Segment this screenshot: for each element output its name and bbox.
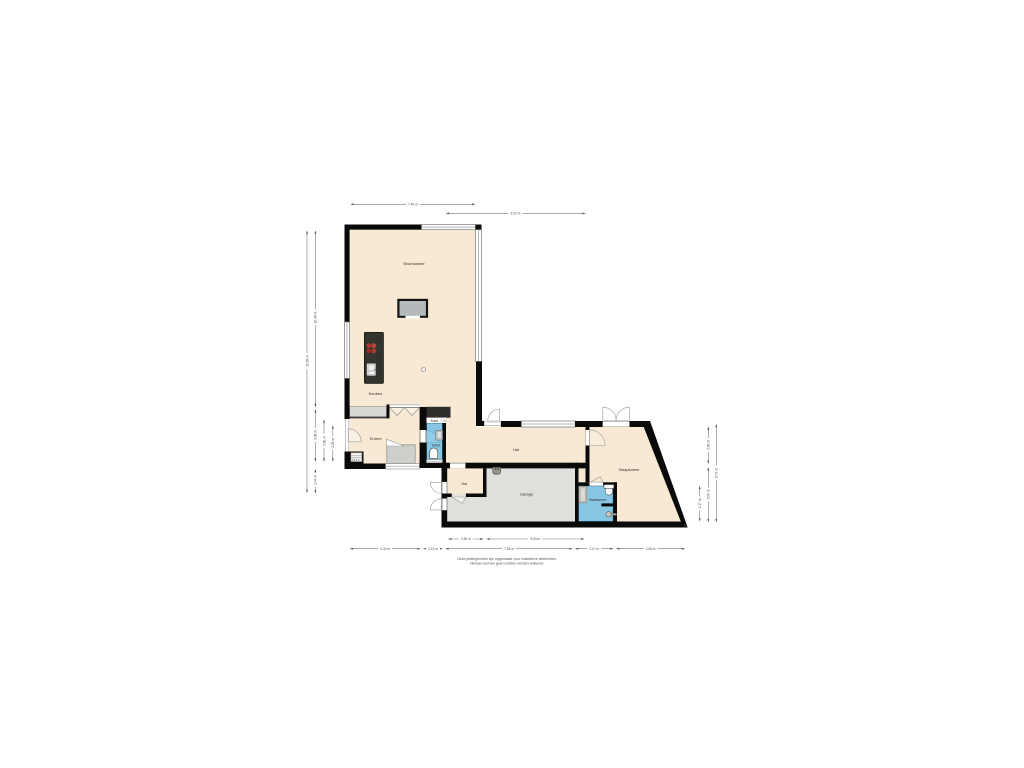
svg-text:5.84 m: 5.84 m bbox=[530, 537, 540, 541]
svg-text:7.40 m: 7.40 m bbox=[408, 203, 418, 207]
svg-text:2.80 m: 2.80 m bbox=[322, 436, 326, 446]
svg-text:Badkamer: Badkamer bbox=[589, 498, 607, 502]
svg-text:4.08 m: 4.08 m bbox=[646, 547, 656, 551]
svg-text:3.00 m: 3.00 m bbox=[707, 489, 711, 499]
svg-text:2.17 m: 2.17 m bbox=[698, 498, 702, 508]
svg-text:Hal: Hal bbox=[461, 482, 467, 486]
svg-text:2.17 m: 2.17 m bbox=[589, 547, 599, 551]
svg-text:8.22 m: 8.22 m bbox=[511, 212, 521, 216]
svg-text:2.06 m: 2.06 m bbox=[707, 440, 711, 450]
svg-text:Slaapkamer: Slaapkamer bbox=[618, 467, 640, 472]
svg-text:15.68 m: 15.68 m bbox=[305, 355, 309, 367]
svg-text:10.48 m: 10.48 m bbox=[314, 311, 318, 323]
svg-text:1.44 m: 1.44 m bbox=[314, 475, 318, 485]
svg-text:Hal: Hal bbox=[513, 447, 519, 452]
svg-text:2.30 m: 2.30 m bbox=[461, 537, 471, 541]
svg-text:3.06 m: 3.06 m bbox=[314, 430, 318, 440]
svg-text:Toilet: Toilet bbox=[431, 444, 441, 448]
svg-text:Entree: Entree bbox=[370, 436, 383, 441]
svg-text:Keuken: Keuken bbox=[369, 391, 383, 396]
svg-text:6.79 m: 6.79 m bbox=[715, 468, 719, 478]
svg-text:1.13 m: 1.13 m bbox=[428, 547, 438, 551]
svg-text:4.40 m: 4.40 m bbox=[380, 547, 390, 551]
svg-text:7.53 m: 7.53 m bbox=[504, 547, 514, 551]
svg-text:Garage: Garage bbox=[520, 491, 534, 496]
svg-text:2.26 m: 2.26 m bbox=[331, 438, 335, 448]
svg-text:Woonkamer: Woonkamer bbox=[403, 261, 425, 266]
svg-text:Kast: Kast bbox=[431, 419, 438, 423]
svg-text:Hieraan kunnen geen rechten wo: Hieraan kunnen geen rechten worden ontle… bbox=[470, 561, 544, 565]
svg-text:1.05: 1.05 bbox=[440, 419, 446, 423]
